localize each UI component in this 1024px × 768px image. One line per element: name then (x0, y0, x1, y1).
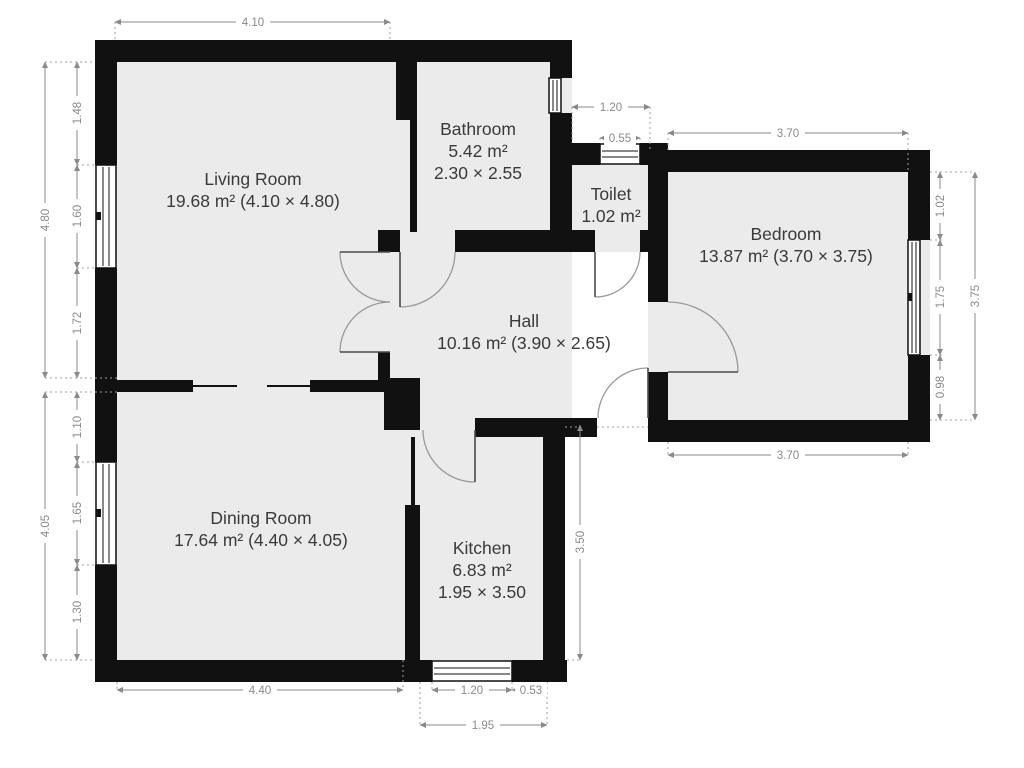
dim-kitchen-bottom-total: 1.95 (420, 718, 547, 732)
wall-hall-top-a (378, 230, 400, 252)
dining-room-details: 17.64 m² (4.40 × 4.05) (174, 530, 348, 550)
wall-bedroom-bottom (648, 420, 930, 442)
dim-label: 3.75 (970, 285, 982, 307)
kitchen-name: Kitchen (453, 538, 511, 558)
wall-living-dining-right (310, 380, 405, 392)
dim-left-lower-seg2: 1.65 (70, 462, 84, 565)
dim-bedroom-right-seg1: 1.02 (933, 172, 947, 240)
wall-hall-bottom (475, 418, 597, 437)
dim-label: 1.10 (72, 416, 84, 438)
wall-bottom-left (95, 660, 432, 682)
dim-label: 0.53 (520, 685, 542, 697)
bathroom-size: 2.30 × 2.55 (434, 163, 522, 183)
dim-left-lower-seg1: 1.10 (70, 392, 84, 462)
dim-label: 1.65 (72, 502, 84, 524)
dim-label: 4.05 (40, 515, 52, 537)
window-frame (600, 144, 640, 164)
door-arc-entrance (598, 368, 648, 418)
dim-bedroom-right-total: 3.75 (968, 172, 982, 420)
dim-label: 4.40 (249, 685, 271, 697)
toilet-area: 1.02 m² (581, 206, 640, 226)
dim-left-lower-seg3: 1.30 (70, 565, 84, 660)
window-bathroom-right (549, 78, 561, 113)
wall-kitchen-right (543, 418, 565, 682)
dim-label: 1.02 (935, 195, 947, 217)
living-room-details: 19.68 m² (4.10 × 4.80) (166, 191, 340, 211)
wall-living-dining-left (108, 380, 193, 392)
window-toilet-top (600, 144, 640, 164)
wall-hall-left (378, 352, 390, 380)
dim-bedroom-bottom: 3.70 (668, 448, 908, 462)
dim-bedroom-top: 3.70 (668, 126, 908, 140)
dim-toilet-top-width: 1.20 (572, 100, 650, 114)
dim-top-width: 4.10 (115, 15, 390, 29)
dim-label: 3.70 (777, 128, 799, 140)
bathroom-area: 5.42 m² (448, 141, 507, 161)
floor-plan-page: Living Room 19.68 m² (4.10 × 4.80) Bathr… (0, 0, 1024, 768)
wall-dining-kitchen-thin (411, 437, 415, 507)
dim-left-upper-seg3: 1.72 (70, 268, 84, 378)
dim-bedroom-right-seg3: 0.98 (933, 355, 947, 420)
floor-fill-main-upper (95, 40, 572, 418)
wall-bathroom-right-upper (550, 62, 572, 78)
dim-label: 1.20 (461, 685, 483, 697)
kitchen-size: 1.95 × 3.50 (438, 582, 526, 602)
dim-left-upper-total: 4.80 (38, 62, 52, 378)
dim-label: 1.75 (935, 286, 947, 308)
dim-dining-bottom: 4.40 (117, 683, 403, 697)
dim-left-lower-total: 4.05 (38, 392, 52, 660)
window-mullion (908, 293, 912, 301)
wall-hall-top-c (572, 230, 595, 252)
dim-label: 0.98 (935, 376, 947, 398)
wall-bedroom-top (648, 150, 930, 172)
wall-bedroom-left-upper (648, 172, 668, 302)
wall-toilet-top-left (572, 143, 600, 165)
dim-label: 3.70 (777, 450, 799, 462)
wall-hall-top-b (455, 230, 572, 252)
dining-room-name: Dining Room (210, 508, 311, 528)
dim-label: 4.10 (242, 17, 264, 29)
wall-living-bathroom-thin (410, 120, 417, 232)
wall-left-middle (95, 268, 117, 462)
bathroom-name: Bathroom (440, 119, 516, 139)
dim-label: 1.20 (600, 102, 622, 114)
wall-hall-top-d (640, 230, 648, 252)
toilet-name: Toilet (591, 184, 632, 204)
window-kitchen-bottom (432, 661, 512, 681)
dim-label: 1.60 (72, 205, 84, 227)
dim-kitchen-bottom-right: 0.53 (512, 683, 547, 697)
dim-kitchen-right: 3.50 (573, 425, 587, 660)
dim-label: 1.48 (72, 102, 84, 124)
wall-bedroom-left-lower (648, 372, 668, 420)
living-room-name: Living Room (204, 169, 301, 189)
dim-kitchen-bottom-window: 1.20 (432, 683, 512, 697)
bedroom-name: Bedroom (750, 224, 821, 244)
dim-label: 1.30 (72, 601, 84, 623)
window-mullion (96, 509, 101, 517)
floor-fill-bedroom (648, 150, 930, 442)
dim-left-upper-seg2: 1.60 (70, 165, 84, 268)
window-frame (549, 78, 561, 113)
wall-dining-kitchen-thick (405, 505, 420, 660)
wall-top (95, 40, 572, 62)
window-mullion (96, 212, 101, 220)
dim-left-upper-seg1: 1.48 (70, 62, 84, 165)
kitchen-area: 6.83 m² (452, 560, 511, 580)
wall-left-upper (95, 40, 117, 165)
wall-bedroom-right-upper (908, 172, 930, 240)
window-living-left (96, 165, 116, 268)
window-dining-left (96, 462, 116, 565)
window-frame (432, 661, 512, 681)
dim-label: 0.55 (609, 133, 631, 145)
floor-plan: Living Room 19.68 m² (4.10 × 4.80) Bathr… (0, 0, 1024, 768)
dim-label: 1.95 (472, 720, 494, 732)
dim-label: 4.80 (40, 209, 52, 231)
dim-label: 1.72 (72, 312, 84, 334)
window-bedroom-right (908, 240, 920, 355)
dim-label: 3.50 (575, 531, 587, 553)
door-arc-toilet (595, 252, 640, 297)
hall-details: 10.16 m² (3.90 × 2.65) (437, 333, 611, 353)
dim-bedroom-right-seg2: 1.75 (933, 240, 947, 355)
wall-bathroom-right-lower (550, 113, 572, 230)
wall-living-bathroom-thick (396, 40, 417, 120)
dim-toilet-window: 0.55 (600, 131, 640, 145)
hall-name: Hall (509, 311, 539, 331)
bedroom-details: 13.87 m² (3.70 × 3.75) (699, 246, 873, 266)
